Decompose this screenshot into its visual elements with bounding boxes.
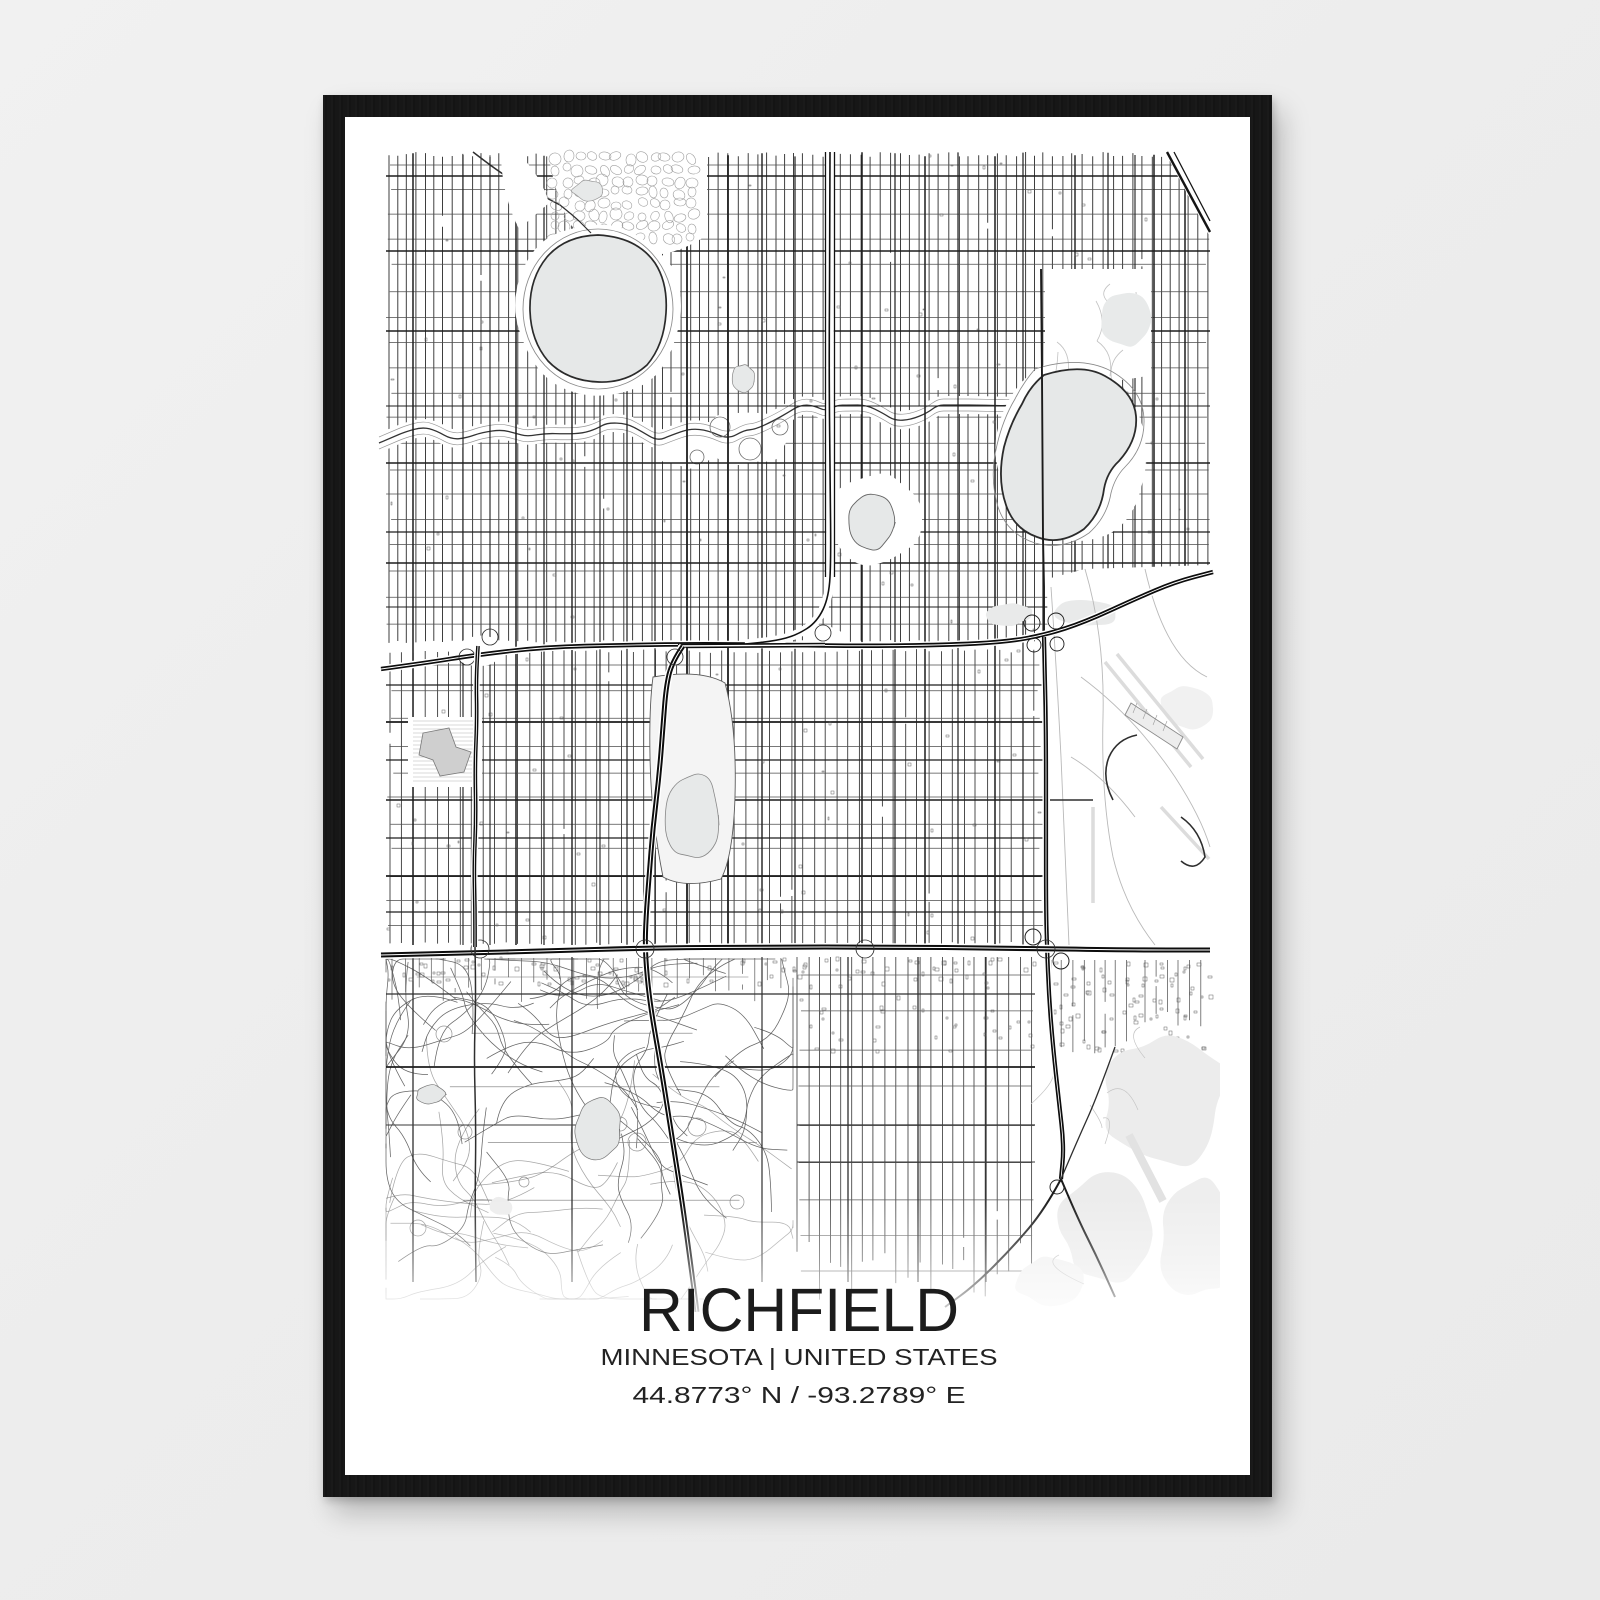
svg-text:RICHFIELD: RICHFIELD — [639, 1276, 959, 1344]
svg-text:44.8773° N / -93.2789° E: 44.8773° N / -93.2789° E — [633, 1382, 966, 1408]
svg-text:MINNESOTA | UNITED STATES: MINNESOTA | UNITED STATES — [601, 1344, 998, 1370]
